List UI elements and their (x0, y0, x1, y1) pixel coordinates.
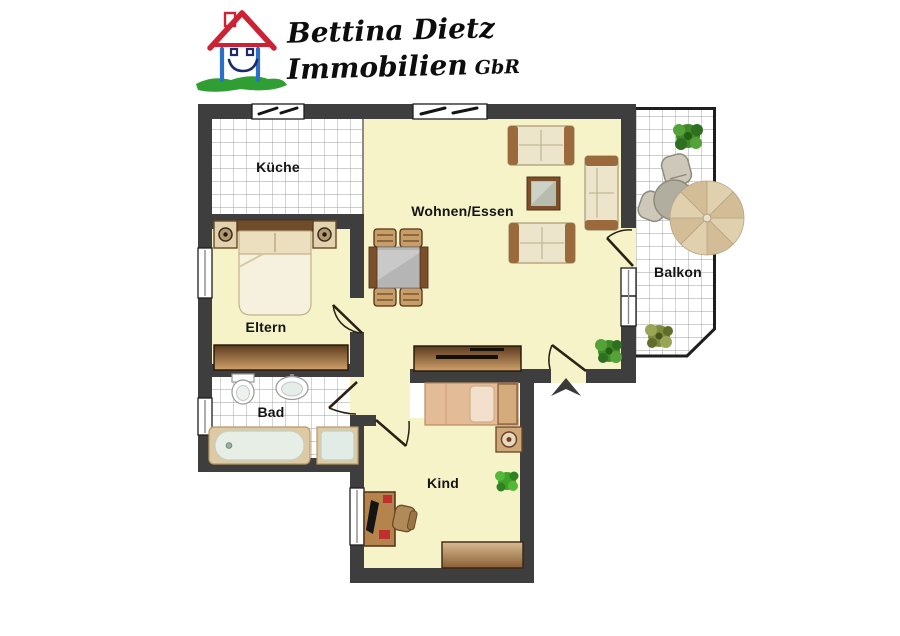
logo-suffix: GbR (474, 56, 520, 79)
double-bed-icon (237, 220, 313, 315)
desk-icon (364, 492, 395, 546)
floorplan-drawing (0, 0, 900, 636)
logo-company-type: ImmobilienGbR (287, 47, 521, 86)
logo-company-name: Bettina Dietz (287, 11, 496, 49)
nightstand-kind-icon (496, 427, 522, 452)
wardrobe-eltern-icon (214, 345, 348, 370)
wall-right-lower (621, 326, 636, 383)
dresser-kind-icon (442, 542, 523, 568)
sofa-top-icon (508, 126, 574, 165)
wall-hall-upper (350, 214, 364, 298)
toilet-icon (232, 374, 254, 404)
wall-kind-bottom (350, 568, 534, 583)
plant-balcony-top-icon (673, 124, 703, 150)
room-label-balkon: Balkon (640, 264, 716, 280)
wall-kind-door-stub (350, 415, 376, 426)
logo-house-icon (196, 13, 287, 92)
plant-living-icon (595, 339, 622, 363)
sideboard-icon (414, 346, 521, 371)
kueche-window-icon (252, 104, 304, 119)
room-label-eltern: Eltern (228, 319, 304, 335)
kind-window-icon (350, 488, 364, 545)
shower-icon (317, 427, 358, 464)
sofa-side-icon (585, 156, 618, 230)
room-label-wohnen: Wohnen/Essen (395, 203, 530, 219)
wohnen-window-icon (413, 104, 487, 119)
eltern-window-icon (198, 248, 212, 298)
room-floors (212, 119, 636, 568)
coffee-table-icon (527, 177, 560, 210)
room-label-bad: Bad (241, 404, 301, 420)
floorplan-page: Bettina Dietz ImmobilienGbR Küche Wohnen… (0, 0, 900, 636)
nightstand-right-icon (313, 221, 336, 248)
dining-table-icon (369, 247, 428, 288)
room-label-kind: Kind (408, 475, 478, 491)
plant-kind-icon (495, 471, 519, 492)
sofa-bottom-icon (509, 223, 575, 263)
parasol-icon (670, 181, 744, 255)
balkon-window-icon (621, 268, 636, 326)
bathtub-icon (209, 427, 310, 464)
wall-right-upper (621, 104, 636, 228)
wall-hall-lower (350, 332, 364, 377)
room-label-kueche: Küche (240, 159, 316, 175)
wall-entry-left (520, 369, 551, 383)
hallway-floor (364, 371, 410, 418)
plant-balcony-bottom-icon (645, 324, 673, 348)
single-bed-icon (425, 383, 518, 425)
nightstand-left-icon (214, 221, 237, 248)
